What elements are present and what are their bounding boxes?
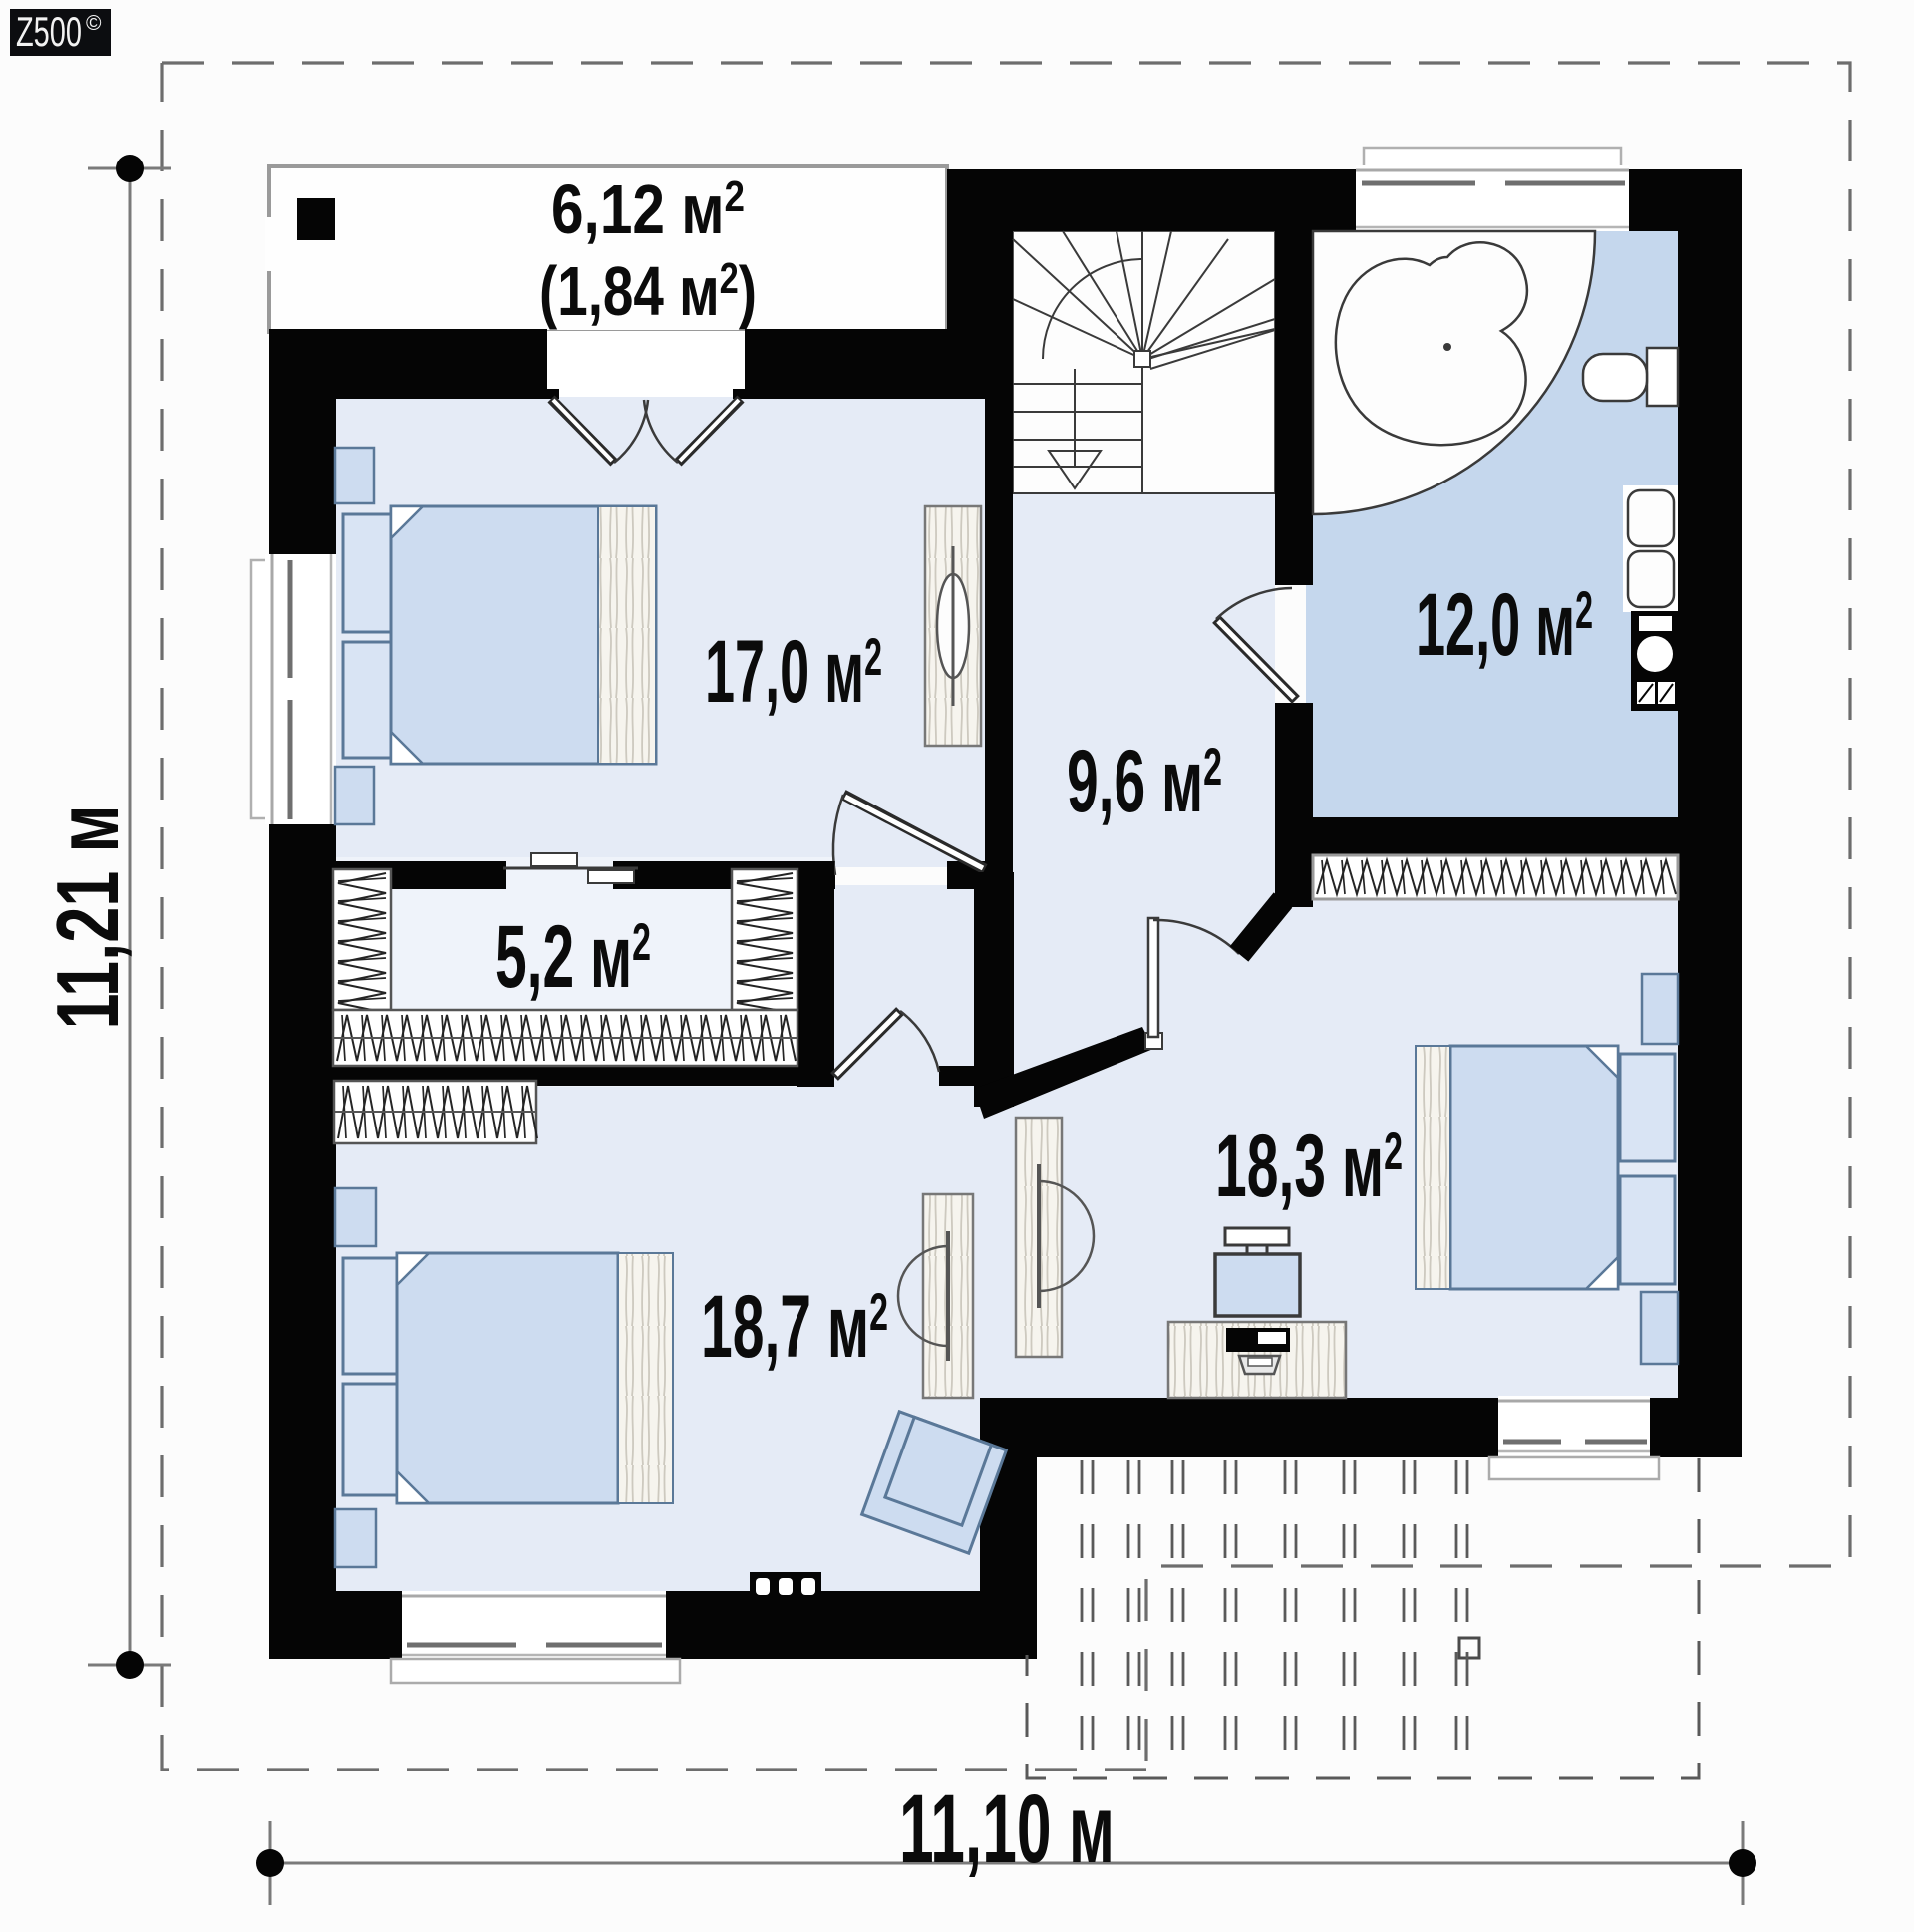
svg-text:11,21 м: 11,21 м <box>38 805 137 1030</box>
svg-text:12,0 м2: 12,0 м2 <box>1416 574 1593 674</box>
svg-text:9,6 м2: 9,6 м2 <box>1067 731 1222 830</box>
svg-text:6,12 м2: 6,12 м2 <box>551 170 745 248</box>
svg-text:11,10 м: 11,10 м <box>899 1774 1115 1883</box>
svg-text:18,7 м2: 18,7 м2 <box>701 1276 888 1376</box>
svg-text:17,0 м2: 17,0 м2 <box>705 621 882 721</box>
svg-text:Z500: Z500 <box>16 8 82 55</box>
svg-text:18,3 м2: 18,3 м2 <box>1215 1116 1403 1215</box>
svg-text:©: © <box>86 12 102 35</box>
svg-text:5,2 м2: 5,2 м2 <box>495 906 651 1006</box>
